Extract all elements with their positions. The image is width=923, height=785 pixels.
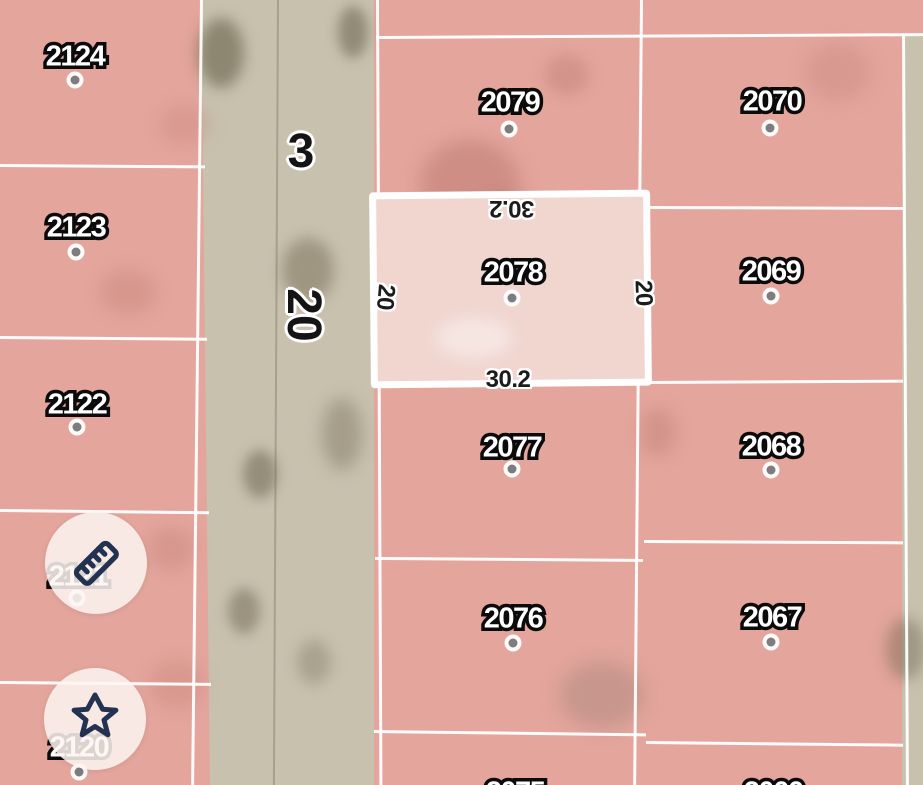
parcel-block-main[interactable] <box>374 0 923 785</box>
parcel-label-text: 2067 <box>743 602 802 634</box>
parcel-centroid-dot <box>504 461 521 478</box>
dimension-label-right: 20 <box>631 280 656 307</box>
parcel-label-2076: 20762076 <box>484 605 543 634</box>
parcel-label-text: 2123 <box>47 212 106 244</box>
parcel-label-text: 2066 <box>744 777 803 785</box>
parcel-centroid-dot <box>763 462 780 479</box>
parcel-label-2069: 20692069 <box>742 258 801 287</box>
parcel-label-2123: 21232123 <box>47 214 106 243</box>
dimension-label-bottom: 30.2 <box>486 368 531 392</box>
parcel-centroid-dot <box>762 120 779 137</box>
parcel-map[interactable]: 3 20 30.2 30.2 20 20 21242124 21232123 2… <box>0 0 923 785</box>
parcel-centroid-dot <box>505 635 522 652</box>
parcel-label-2075: 20752075 <box>486 779 545 785</box>
parcel-label-2124: 21242124 <box>46 43 105 72</box>
favorite-tool-button[interactable] <box>44 668 146 770</box>
parcel-label-text: 2069 <box>742 256 801 288</box>
parcel-label-text: 2077 <box>483 432 542 464</box>
parcel-centroid-dot <box>67 72 84 89</box>
parcel-label-text: 2122 <box>48 389 107 421</box>
dimension-label-left: 20 <box>372 283 398 311</box>
parcel-centroid-dot <box>504 290 521 307</box>
parcel-centroid-dot <box>69 419 86 436</box>
measure-tool-button[interactable] <box>45 512 147 614</box>
parcel-label-text: 2075 <box>486 777 545 785</box>
parcel-label-text: 2078 <box>484 257 543 289</box>
road-number-label: 3 <box>288 128 315 176</box>
dimension-label-top: 30.2 <box>490 196 535 220</box>
parcel-label-2066: 20662066 <box>744 779 803 785</box>
parcel-label-text: 2124 <box>46 41 105 73</box>
parcel-label-2078: 20782078 <box>484 259 543 288</box>
parcel-centroid-dot <box>763 288 780 305</box>
road-width-label: 20 <box>279 288 327 341</box>
parcel-centroid-dot <box>763 634 780 651</box>
parcel-label-2067: 20672067 <box>743 604 802 633</box>
parcel-label-text: 2068 <box>742 431 801 463</box>
parcel-label-2068: 20682068 <box>742 433 801 462</box>
parcel-label-2079: 20792079 <box>481 89 540 118</box>
road-surface-right[interactable] <box>902 34 923 785</box>
star-icon <box>67 687 123 743</box>
parcel-label-text: 2076 <box>484 603 543 635</box>
parcel-label-2077: 20772077 <box>483 434 542 463</box>
parcel-centroid-dot <box>501 121 518 138</box>
ruler-icon <box>67 534 125 592</box>
parcel-label-text: 2079 <box>481 87 540 119</box>
parcel-label-2122: 21222122 <box>48 391 107 420</box>
parcel-label-text: 2070 <box>743 86 802 118</box>
parcel-centroid-dot <box>68 244 85 261</box>
parcel-label-2070: 20702070 <box>743 88 802 117</box>
